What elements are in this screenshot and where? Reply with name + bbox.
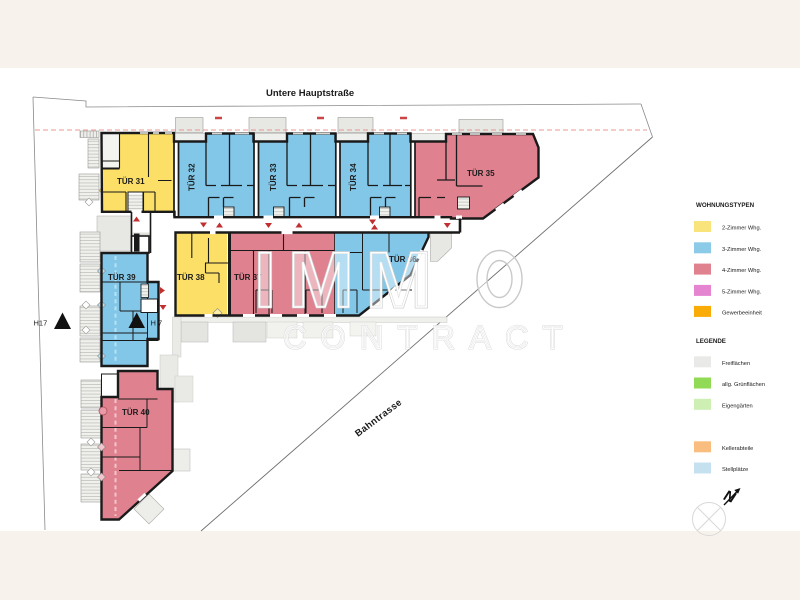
svg-text:5-Zimmer Whg.: 5-Zimmer Whg. [722, 289, 762, 295]
svg-text:LEGENDE: LEGENDE [696, 338, 726, 345]
svg-text:Kellerabteile: Kellerabteile [722, 446, 753, 452]
svg-text:TÜR 31: TÜR 31 [117, 177, 145, 186]
svg-text:Untere Hauptstraße: Untere Hauptstraße [266, 88, 354, 99]
svg-text:3-Zimmer Whg.: 3-Zimmer Whg. [722, 247, 762, 253]
svg-text:TÜR 32: TÜR 32 [188, 163, 197, 191]
svg-text:TÜR 34: TÜR 34 [349, 163, 358, 191]
svg-text:2-Zimmer Whg.: 2-Zimmer Whg. [722, 226, 762, 232]
svg-text:4-Zimmer Whg.: 4-Zimmer Whg. [722, 268, 762, 274]
svg-text:Stellplätze: Stellplätze [722, 467, 748, 473]
svg-text:TÜR 39: TÜR 39 [108, 273, 136, 282]
svg-text:allg. Grünflächen: allg. Grünflächen [722, 382, 765, 388]
svg-text:TÜR 38: TÜR 38 [177, 273, 205, 282]
svg-text:CONTRACT: CONTRACT [283, 320, 577, 356]
svg-text:TÜR 35: TÜR 35 [467, 169, 495, 178]
svg-text:WOHNUNGSTYPEN: WOHNUNGSTYPEN [696, 202, 755, 209]
svg-text:H17: H17 [34, 319, 48, 328]
svg-text:TÜR 33: TÜR 33 [269, 163, 278, 191]
svg-text:Freiflächen: Freiflächen [722, 361, 750, 367]
svg-text:IMM: IMM [254, 235, 444, 324]
svg-text:TÜR 40: TÜR 40 [122, 408, 150, 417]
svg-text:Gewerbeeinheit: Gewerbeeinheit [722, 310, 762, 316]
svg-text:H 7: H 7 [151, 319, 163, 328]
svg-text:Eigengärten: Eigengärten [722, 403, 753, 409]
